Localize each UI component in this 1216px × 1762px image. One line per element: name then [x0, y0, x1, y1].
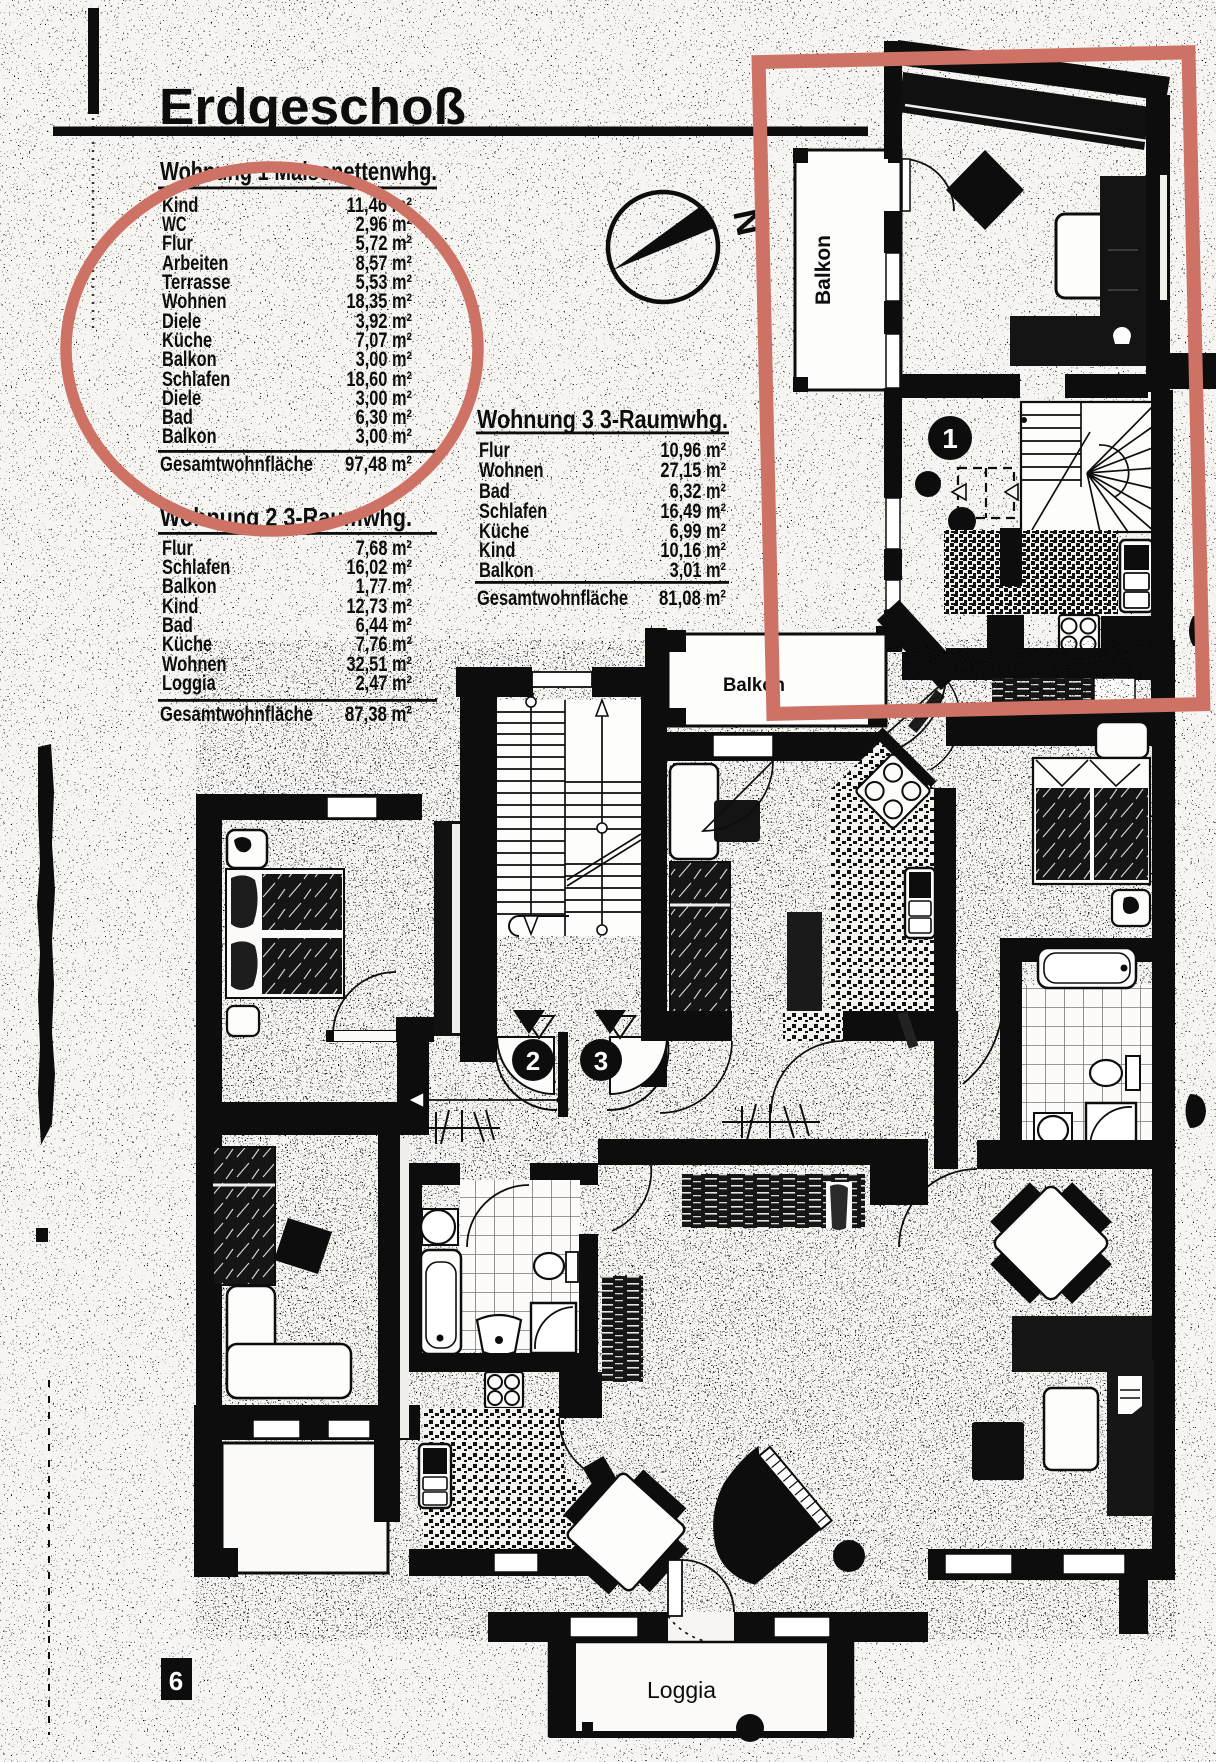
- svg-text:27,15 m²: 27,15 m²: [660, 459, 726, 482]
- svg-text:Gesamtwohnfläche: Gesamtwohnfläche: [477, 586, 628, 610]
- svg-text:3: 3: [594, 1046, 608, 1076]
- svg-text:Balkon: Balkon: [162, 425, 217, 448]
- svg-text:1: 1: [942, 423, 958, 454]
- svg-text:3,00 m²: 3,00 m²: [356, 425, 412, 448]
- svg-text:Erdgeschoß: Erdgeschoß: [159, 78, 466, 135]
- svg-text:Wohnung 3 3-Raumwhg.: Wohnung 3 3-Raumwhg.: [477, 404, 728, 434]
- svg-text:Balkon: Balkon: [479, 559, 534, 582]
- svg-text:Balkon: Balkon: [812, 235, 835, 305]
- svg-text:3,01 m²: 3,01 m²: [670, 559, 726, 582]
- svg-text:6: 6: [169, 1666, 183, 1696]
- svg-text:2: 2: [526, 1046, 540, 1076]
- svg-text:Wohnen: Wohnen: [479, 459, 544, 482]
- svg-text:97,48 m²: 97,48 m²: [345, 452, 412, 476]
- svg-text:81,08 m²: 81,08 m²: [659, 586, 726, 610]
- svg-text:Gesamtwohnfläche: Gesamtwohnfläche: [160, 452, 313, 476]
- svg-text:Loggia: Loggia: [647, 1677, 716, 1703]
